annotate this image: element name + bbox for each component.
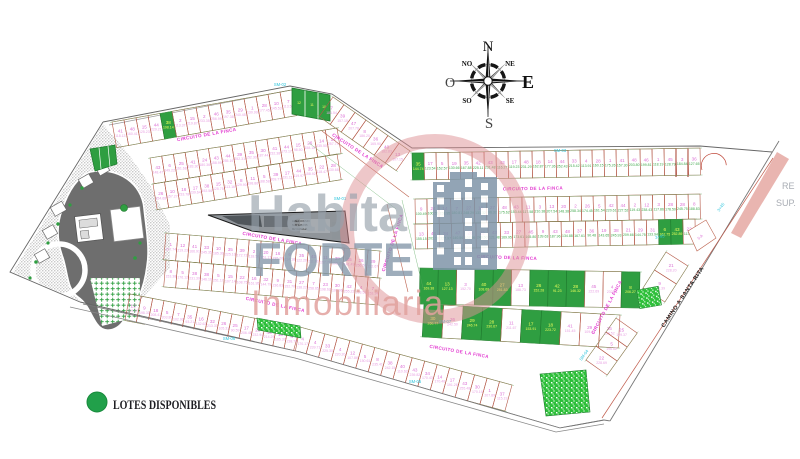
svg-text:13: 13 [518,283,524,288]
svg-text:10: 10 [170,189,176,194]
svg-text:19: 19 [452,161,458,166]
svg-text:113.91: 113.91 [581,164,591,168]
svg-text:44: 44 [154,122,160,127]
svg-text:245.93: 245.93 [611,233,622,237]
svg-text:38: 38 [614,228,620,233]
svg-text:118.47: 118.47 [317,170,327,174]
svg-text:SE: SE [506,97,515,105]
svg-text:3: 3 [539,204,542,209]
svg-text:41: 41 [620,158,626,163]
svg-text:44: 44 [225,154,231,159]
svg-text:1: 1 [657,157,660,162]
svg-text:44: 44 [620,203,626,208]
svg-text:161.54: 161.54 [594,209,605,213]
svg-text:13: 13 [549,204,555,209]
svg-text:132.62: 132.62 [196,322,207,326]
svg-text:9: 9 [542,229,545,234]
svg-text:28: 28 [489,319,495,324]
svg-text:33: 33 [204,245,210,250]
svg-text:SM-05: SM-05 [409,379,422,384]
svg-text:26: 26 [307,141,313,146]
svg-text:16: 16 [199,317,205,322]
svg-text:41: 41 [568,324,574,329]
svg-text:152.57: 152.57 [437,166,448,170]
svg-text:8: 8 [240,178,243,183]
svg-text:108.75: 108.75 [237,280,248,284]
svg-text:214.29: 214.29 [264,335,275,339]
svg-text:146.32: 146.32 [570,289,581,293]
svg-text:15: 15 [296,142,302,147]
svg-text:130.68: 130.68 [328,168,339,172]
svg-text:246.74: 246.74 [467,324,478,328]
svg-text:2: 2 [203,114,206,119]
svg-text:257.73: 257.73 [328,142,339,146]
svg-text:231.29: 231.29 [521,165,532,169]
svg-text:196.62: 196.62 [606,347,617,351]
svg-text:48: 48 [502,205,508,210]
svg-text:5: 5 [263,174,266,179]
svg-text:10: 10 [322,105,326,109]
svg-text:42: 42 [555,284,561,289]
svg-text:4: 4 [301,337,304,342]
svg-text:43: 43 [553,229,559,234]
svg-text:157.15: 157.15 [337,119,348,123]
svg-text:10: 10 [274,101,280,106]
svg-text:209.66: 209.66 [623,233,634,237]
svg-text:178.50: 178.50 [665,207,676,211]
svg-text:17: 17 [244,325,250,330]
svg-text:119.97: 119.97 [294,174,304,178]
svg-text:47: 47 [351,121,357,126]
svg-text:6: 6 [168,163,171,168]
svg-text:239.82: 239.82 [410,373,421,377]
svg-text:110.63: 110.63 [397,369,407,373]
svg-text:5: 5 [364,354,367,359]
svg-text:235.41: 235.41 [372,363,383,367]
svg-text:198.33: 198.33 [139,311,150,315]
svg-text:148.47: 148.47 [153,170,164,174]
svg-text:6: 6 [664,227,667,232]
svg-text:22: 22 [240,275,246,280]
svg-text:37: 37 [500,391,506,396]
svg-text:29: 29 [470,318,476,323]
svg-text:177.45: 177.45 [259,109,270,113]
svg-text:188.83: 188.83 [689,207,700,211]
svg-text:183.30: 183.30 [188,165,199,169]
svg-text:231.39: 231.39 [189,276,200,280]
svg-text:240.45: 240.45 [235,113,246,117]
svg-text:43: 43 [214,156,220,161]
svg-text:175.62: 175.62 [499,210,510,214]
svg-text:5: 5 [181,270,184,275]
svg-text:149.22: 149.22 [164,168,175,172]
svg-text:5: 5 [598,203,601,208]
svg-text:129.37: 129.37 [616,333,627,337]
svg-text:3: 3 [464,282,467,287]
svg-text:43: 43 [412,367,418,372]
svg-text:29: 29 [238,107,244,112]
svg-text:235.50: 235.50 [316,144,327,148]
svg-text:38: 38 [166,120,172,125]
svg-text:232.38: 232.38 [269,152,280,156]
svg-text:33: 33 [504,230,510,235]
svg-text:3: 3 [681,157,684,162]
svg-text:26: 26 [585,204,591,209]
svg-text:150.61: 150.61 [360,359,371,363]
svg-text:44: 44 [560,159,566,164]
svg-text:225.11: 225.11 [473,166,483,170]
svg-text:18: 18 [536,159,542,164]
svg-text:25: 25 [179,161,185,166]
svg-text:172.72: 172.72 [237,253,248,257]
svg-text:Inmobiliaria: Inmobiliaria [251,284,444,323]
svg-text:5: 5 [217,273,220,278]
svg-text:157.27: 157.27 [167,194,178,198]
svg-text:117.86: 117.86 [653,208,663,212]
svg-text:31: 31 [650,227,656,232]
svg-text:251.17: 251.17 [213,278,224,282]
svg-text:4: 4 [314,340,317,345]
svg-text:161.68: 161.68 [176,167,187,171]
svg-text:1: 1 [251,105,254,110]
svg-text:144.74: 144.74 [413,167,424,171]
svg-text:152.70: 152.70 [460,287,471,291]
svg-text:130.99: 130.99 [247,111,258,115]
svg-text:42: 42 [609,203,615,208]
svg-text:39: 39 [273,172,279,177]
svg-text:239.64: 239.64 [190,191,201,195]
svg-text:19: 19 [601,228,607,233]
svg-text:229.21: 229.21 [151,128,162,132]
svg-text:139.63: 139.63 [538,235,549,239]
svg-text:169.95: 169.95 [501,235,512,239]
svg-text:2: 2 [179,118,182,123]
svg-text:21: 21 [626,228,632,233]
svg-text:181.54: 181.54 [326,111,337,115]
svg-text:S: S [485,116,493,132]
svg-text:18: 18 [548,323,554,328]
svg-text:45: 45 [591,284,597,289]
svg-text:28: 28 [680,202,686,207]
svg-text:145.53: 145.53 [271,106,282,110]
svg-text:225.10: 225.10 [225,252,236,256]
svg-text:232.94: 232.94 [252,333,263,337]
svg-text:167.88: 167.88 [461,166,472,170]
svg-text:158.99: 158.99 [211,161,222,165]
svg-text:208.41: 208.41 [150,313,161,317]
svg-text:175.26: 175.26 [605,164,616,168]
svg-text:170.17: 170.17 [297,342,308,346]
svg-text:5: 5 [441,161,444,166]
svg-text:119.23: 119.23 [509,165,519,169]
svg-text:39: 39 [340,113,346,118]
svg-text:40: 40 [400,364,406,369]
svg-text:26: 26 [221,321,227,326]
svg-text:48: 48 [632,158,638,163]
svg-text:37: 37 [577,229,583,234]
svg-text:30: 30 [261,148,267,153]
svg-text:5: 5 [610,342,613,347]
svg-text:8: 8 [693,202,696,207]
svg-text:203.80: 203.80 [162,315,173,319]
svg-text:33: 33 [325,344,331,349]
svg-text:13: 13 [131,303,137,308]
svg-text:157.30: 157.30 [617,163,628,167]
svg-text:255.19: 255.19 [223,159,234,163]
svg-text:213.37: 213.37 [207,324,218,328]
svg-text:35: 35 [464,161,470,166]
svg-text:48: 48 [130,127,136,132]
svg-text:7: 7 [177,312,180,317]
svg-text:48: 48 [524,160,530,165]
svg-text:152.30: 152.30 [246,155,257,159]
svg-text:36: 36 [373,137,379,142]
svg-text:17: 17 [512,160,518,165]
svg-text:SM-02: SM-02 [274,82,287,87]
svg-text:N: N [483,39,494,55]
svg-text:22: 22 [599,356,605,361]
svg-text:143.65: 143.65 [599,234,610,238]
svg-text:211.67: 211.67 [506,326,516,330]
svg-text:166.91: 166.91 [189,249,200,253]
svg-text:9: 9 [658,281,661,286]
svg-text:33: 33 [572,159,578,164]
svg-text:45: 45 [668,157,674,162]
svg-text:220.61: 220.61 [606,209,617,213]
svg-text:17: 17 [450,378,456,383]
svg-text:207.54: 207.54 [546,210,557,214]
svg-text:1: 1 [609,158,612,163]
svg-text:187.44: 187.44 [258,153,269,157]
svg-text:170.19: 170.19 [472,390,483,394]
svg-text:SUP.: SUP. [776,198,796,208]
svg-text:7: 7 [330,106,333,111]
svg-text:228.20: 228.20 [666,268,677,272]
svg-text:252.31: 252.31 [234,157,245,161]
svg-text:258.34: 258.34 [570,209,581,213]
svg-text:198.14: 198.14 [163,126,174,130]
svg-text:15: 15 [216,182,222,187]
svg-text:227.67: 227.67 [128,309,139,313]
svg-text:11: 11 [250,176,255,181]
svg-text:222.69: 222.69 [588,290,599,294]
svg-text:28: 28 [668,202,674,207]
svg-text:32: 32 [210,319,216,324]
svg-text:17: 17 [193,185,199,190]
svg-text:10: 10 [216,246,222,251]
svg-text:220.20: 220.20 [335,352,346,356]
svg-text:E: E [522,72,534,92]
svg-text:8: 8 [170,269,173,274]
svg-text:102.93: 102.93 [173,318,184,322]
svg-text:223.72: 223.72 [545,328,556,332]
svg-text:O: O [445,76,455,91]
svg-text:100.49: 100.49 [416,212,427,216]
svg-text:13: 13 [419,231,425,236]
svg-text:146.10: 146.10 [201,277,212,281]
svg-text:35: 35 [228,247,234,252]
svg-text:9: 9 [143,306,146,311]
svg-text:46: 46 [644,157,650,162]
svg-text:35: 35 [249,150,255,155]
svg-text:39: 39 [237,152,243,157]
svg-text:125.75: 125.75 [213,187,224,191]
svg-text:38: 38 [204,183,210,188]
svg-text:30: 30 [475,385,481,390]
svg-text:9: 9 [420,206,423,211]
svg-text:155.15: 155.15 [416,237,427,241]
svg-text:160.41: 160.41 [127,132,138,136]
svg-text:127.65: 127.65 [689,162,700,166]
svg-text:177.36: 177.36 [545,165,556,169]
svg-text:174.45: 174.45 [582,209,593,213]
svg-text:256.99: 256.99 [211,117,222,121]
svg-text:115.19: 115.19 [497,397,507,401]
svg-text:26: 26 [536,283,542,288]
svg-text:90.59: 90.59 [231,329,240,333]
svg-text:255.48: 255.48 [459,387,470,391]
svg-text:184.84: 184.84 [677,162,688,166]
svg-text:13: 13 [445,282,451,287]
svg-text:41: 41 [190,159,196,164]
svg-text:199.81: 199.81 [641,163,652,167]
svg-text:233.78: 233.78 [178,193,189,197]
svg-text:11: 11 [310,103,314,107]
svg-text:230.67: 230.67 [486,325,497,329]
svg-text:41: 41 [118,129,124,134]
svg-text:187.96: 187.96 [550,234,561,238]
svg-text:209.77: 209.77 [270,178,281,182]
svg-text:254.68: 254.68 [155,196,166,200]
svg-text:252.89: 252.89 [672,232,683,236]
svg-text:173.17: 173.17 [281,150,292,154]
svg-text:LOTES DISPONIBLES: LOTES DISPONIBLES [113,398,216,412]
svg-text:98.50: 98.50 [294,148,303,152]
svg-text:41: 41 [192,244,198,249]
svg-text:185.30: 185.30 [213,251,224,255]
svg-text:14: 14 [319,139,325,144]
svg-text:3: 3 [657,202,660,207]
svg-text:26: 26 [158,191,164,196]
svg-text:90.48: 90.48 [587,234,596,238]
svg-text:158.92: 158.92 [305,172,316,176]
svg-text:43: 43 [674,227,680,232]
svg-text:207.78: 207.78 [348,127,359,131]
svg-text:32: 32 [227,180,233,185]
svg-text:SM-03: SM-03 [554,148,567,153]
svg-text:170.40: 170.40 [434,380,445,384]
svg-text:44: 44 [296,168,302,173]
svg-text:34: 34 [425,371,431,376]
svg-text:18: 18 [153,308,159,313]
svg-text:SO: SO [462,97,472,105]
svg-text:28: 28 [262,103,268,108]
svg-text:29: 29 [638,228,644,233]
svg-text:24: 24 [202,157,208,162]
svg-text:35: 35 [308,167,314,172]
svg-text:113.37: 113.37 [175,124,185,128]
svg-text:39: 39 [240,248,246,253]
svg-text:35: 35 [416,161,422,166]
svg-text:186.20: 186.20 [359,134,370,138]
svg-text:38: 38 [387,361,393,366]
svg-text:206.46: 206.46 [241,331,252,335]
svg-text:129.90: 129.90 [236,183,247,187]
svg-text:15: 15 [190,116,196,121]
svg-text:44: 44 [284,144,290,149]
svg-text:233.35: 233.35 [199,119,210,123]
svg-text:148.38: 148.38 [558,209,569,213]
svg-text:107.14: 107.14 [225,279,236,283]
svg-text:36: 36 [692,157,698,162]
svg-text:14: 14 [548,159,554,164]
svg-text:125.23: 125.23 [139,130,150,134]
svg-text:215.42: 215.42 [569,164,580,168]
svg-text:228.69: 228.69 [596,361,607,365]
svg-text:91.23: 91.23 [553,289,562,293]
svg-text:197.38: 197.38 [223,115,234,119]
svg-text:192.56: 192.56 [201,189,212,193]
svg-text:188.73: 188.73 [515,288,526,292]
svg-text:252.43: 252.43 [557,164,568,168]
svg-text:225.30: 225.30 [322,349,333,353]
svg-text:28: 28 [331,163,337,168]
svg-text:130.66: 130.66 [449,166,460,170]
svg-text:22: 22 [319,165,325,170]
svg-text:16: 16 [181,187,187,192]
svg-text:113.16: 113.16 [225,185,235,189]
svg-text:41: 41 [272,146,278,151]
svg-text:43: 43 [155,165,161,170]
svg-text:1: 1 [488,388,491,393]
svg-text:8: 8 [629,285,632,290]
svg-text:207.89: 207.89 [484,393,495,397]
svg-text:119.43: 119.43 [630,208,640,212]
svg-text:231.11: 231.11 [282,176,292,180]
svg-text:25: 25 [233,323,239,328]
svg-text:239.71: 239.71 [310,346,321,350]
svg-text:25: 25 [619,328,625,333]
svg-text:245.75: 245.75 [677,207,688,211]
svg-text:93.21: 93.21 [185,320,194,324]
svg-text:35: 35 [226,110,232,115]
svg-text:188.58: 188.58 [259,179,270,183]
svg-text:162.87: 162.87 [533,165,544,169]
svg-text:11: 11 [509,320,514,325]
svg-text:NE: NE [505,60,515,68]
svg-text:NO: NO [462,60,473,68]
svg-text:176.12: 176.12 [177,275,188,279]
svg-text:40: 40 [481,282,487,287]
svg-text:5: 5 [166,310,169,315]
svg-text:38: 38 [204,272,210,277]
svg-text:227.52: 227.52 [618,208,629,212]
svg-text:118.13: 118.13 [115,134,125,138]
svg-text:118.19: 118.19 [653,163,663,167]
svg-text:12: 12 [180,243,186,248]
svg-text:12: 12 [644,202,650,207]
svg-text:242.15: 242.15 [385,366,396,370]
svg-text:219.23: 219.23 [177,248,188,252]
svg-text:8: 8 [363,129,366,134]
svg-text:12: 12 [350,350,356,355]
svg-text:134.88: 134.88 [562,234,573,238]
svg-text:4: 4 [339,347,342,352]
svg-text:20: 20 [561,204,567,209]
svg-text:28: 28 [596,158,602,163]
svg-text:48: 48 [565,229,571,234]
svg-text:157.74: 157.74 [165,247,176,251]
